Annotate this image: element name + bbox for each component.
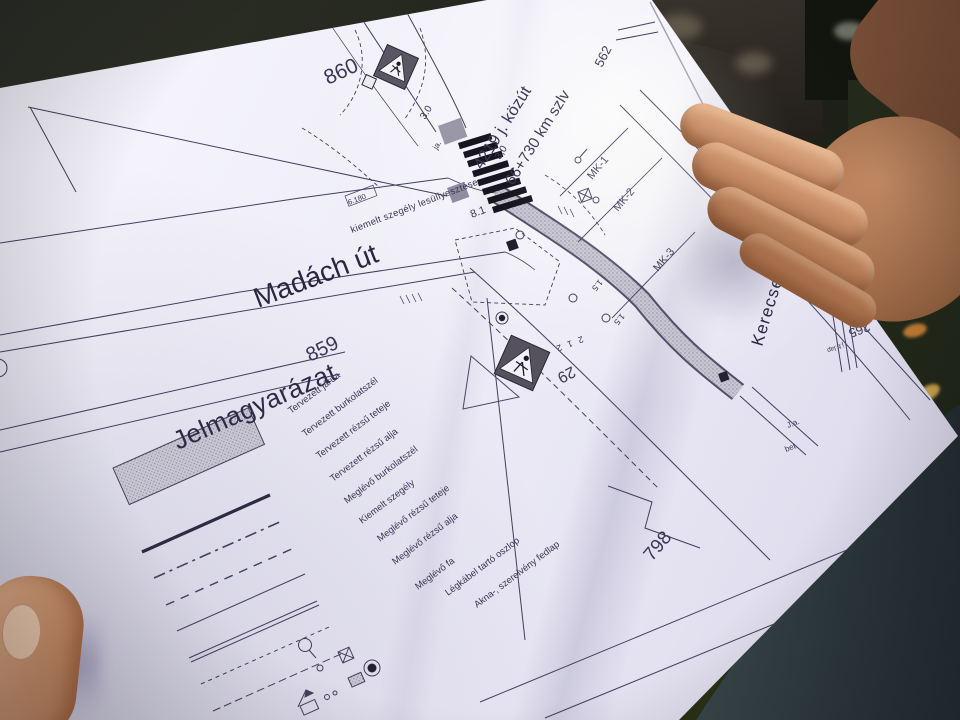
legend-hatched-box bbox=[348, 672, 365, 687]
legend-open-box bbox=[300, 699, 319, 715]
tree-icon bbox=[602, 314, 610, 322]
legend-item-label: Tervezett rézsű teteje bbox=[314, 398, 393, 461]
dimension-label: 2 1 2 bbox=[553, 334, 585, 354]
sheet-ref-label: j.b.lap bbox=[826, 341, 846, 354]
legend-tree-icon bbox=[299, 639, 317, 659]
parcel-number: 798 bbox=[640, 527, 676, 565]
legend-pole-icon bbox=[338, 647, 354, 663]
legend-item-label: Meglévő rézsű teteje bbox=[375, 483, 452, 545]
legend-item-label: Légkábel tartó oszlop bbox=[443, 535, 522, 598]
dimension-label: 8.1 bbox=[469, 204, 488, 221]
dimension-label: 1.5 bbox=[590, 278, 605, 294]
legend-small-circle bbox=[317, 665, 323, 671]
material-abbr: bet. bbox=[783, 441, 799, 454]
legend-manhole-icon bbox=[364, 660, 380, 676]
legend-tiny-circle bbox=[333, 691, 337, 695]
tree-icon bbox=[569, 294, 577, 302]
legend-item-label: Meglévő burkolatszél bbox=[342, 444, 420, 506]
street-label-madach: Madách út bbox=[249, 238, 382, 314]
dimension-label: 1.5 bbox=[612, 312, 627, 328]
sidewalk-abbr: ja. bbox=[431, 139, 444, 152]
dimension-label: 3.0 bbox=[418, 104, 435, 122]
legend-flag-icon bbox=[298, 690, 313, 707]
legend-swatches bbox=[113, 408, 380, 715]
plan-drawing: Madách út Kerecsenyi utca 4219 j. közút … bbox=[0, 0, 960, 720]
parcel-number: 860 bbox=[320, 54, 361, 90]
structure-square bbox=[506, 239, 519, 252]
legend-tiny-circle bbox=[325, 695, 330, 700]
curb-note-label: kiemelt szegély lesüllyesztése bbox=[349, 177, 480, 236]
legend-item-label: Akna-, szerelvény fedlap bbox=[472, 539, 562, 610]
photo-scene: Madách út Kerecsenyi utca 4219 j. közút … bbox=[0, 0, 960, 720]
